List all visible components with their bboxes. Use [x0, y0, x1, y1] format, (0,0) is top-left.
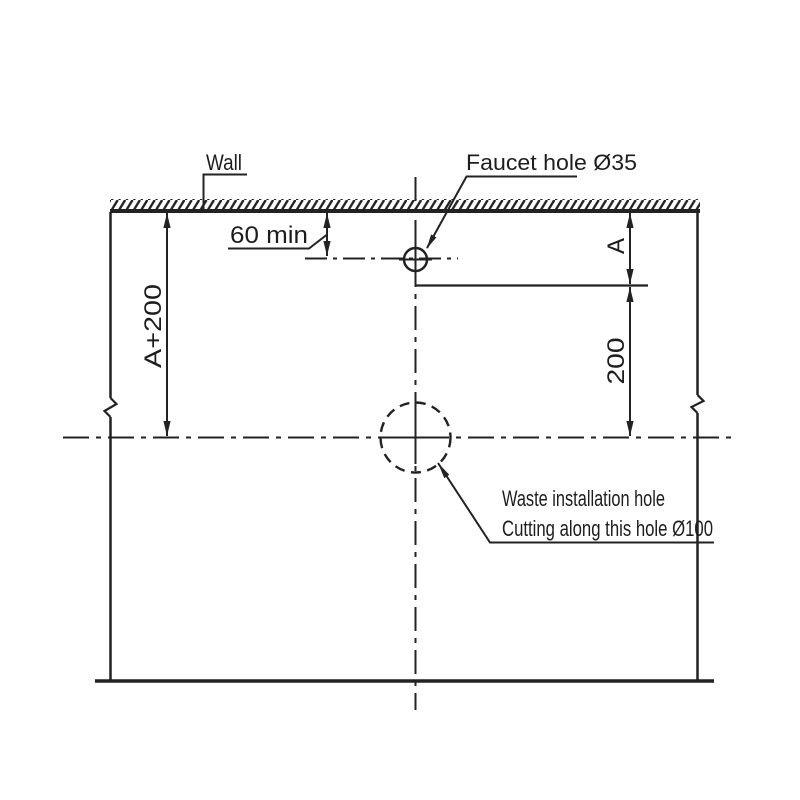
leader-arrow-icon [438, 463, 449, 478]
waste-label-group: Waste installation hole Cutting along th… [438, 463, 714, 543]
dim-label-200: 200 [603, 338, 630, 385]
dimension-a-plus-200: A+200 [140, 213, 171, 436]
dim-label-60-min: 60 min [230, 222, 308, 249]
technical-drawing-canvas: A+200 60 min A 200 Wall [0, 0, 800, 800]
arrow-down-icon [626, 269, 633, 284]
break-symbol-right [692, 395, 704, 413]
faucet-hole-label: Faucet hole Ø35 [466, 150, 637, 175]
wall-hatching [110, 199, 700, 210]
leader-arrow-icon [427, 235, 437, 250]
arrow-up-icon [323, 213, 330, 228]
arrow-up-icon [626, 287, 633, 302]
arrow-up-icon [163, 213, 170, 228]
waste-hole [381, 403, 451, 473]
waste-hole-label-line1: Waste installation hole [502, 486, 665, 511]
dim-label-a: A [603, 238, 630, 254]
dimension-60-min: 60 min [228, 213, 331, 256]
panel-outline [95, 212, 714, 681]
arrow-down-icon [163, 421, 170, 436]
centerlines [63, 177, 733, 710]
dim-label-a-plus-200: A+200 [140, 284, 167, 368]
arrow-down-icon [626, 421, 633, 436]
dimension-200: 200 [603, 287, 634, 436]
arrow-down-icon [323, 241, 330, 256]
wall-label: Wall [206, 150, 242, 175]
wall [110, 199, 700, 211]
arrow-up-icon [626, 213, 633, 228]
installation-diagram: A+200 60 min A 200 Wall [0, 0, 800, 800]
dimension-a: A [603, 213, 634, 284]
waste-hole-label-line2: Cutting along this hole Ø100 [502, 516, 713, 541]
break-symbol-left [105, 398, 117, 417]
